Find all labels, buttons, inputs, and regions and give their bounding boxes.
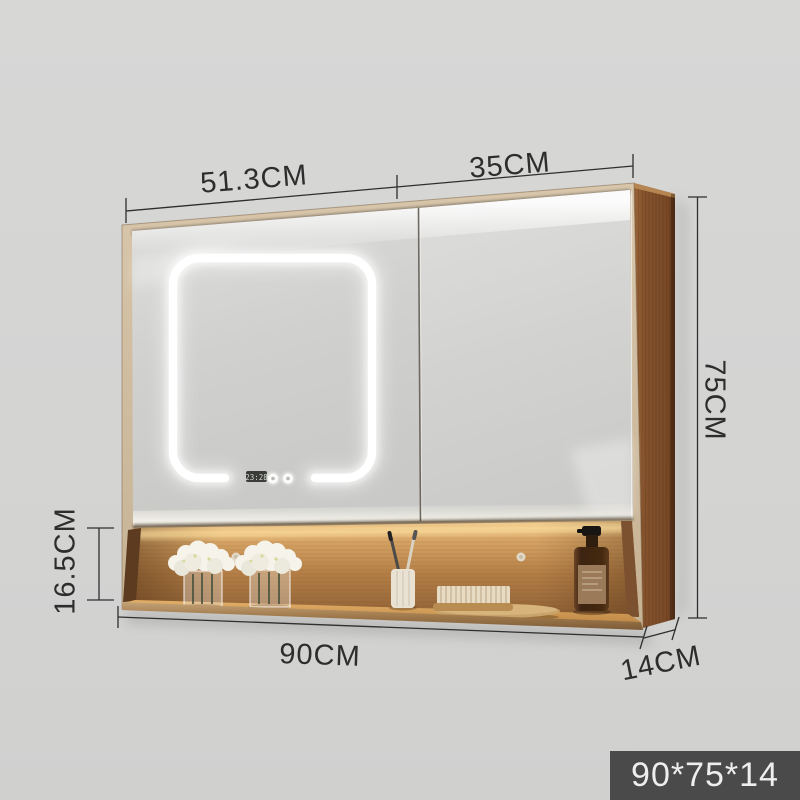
dimension-label-top-right-width: 35CM — [468, 148, 551, 183]
mirror-cabinet: 23:28 — [122, 183, 675, 630]
dimension-label-shelf-height: 16.5CM — [52, 507, 81, 615]
right-mirror-door — [419, 190, 633, 521]
screw-cap-right — [517, 553, 526, 562]
cabinet-scene: 23:28 — [0, 0, 800, 800]
wooden-brush — [433, 586, 513, 611]
size-badge: 90*75*14 — [610, 751, 800, 800]
cabinet-side-shadow — [675, 197, 688, 617]
touch-button-light — [267, 472, 280, 485]
dimension-label-total-width: 90CM — [279, 640, 361, 672]
product-image: 23:28 — [0, 0, 800, 800]
clock-time: 23:28 — [245, 473, 268, 482]
dimension-label-height: 75CM — [700, 359, 729, 440]
touch-button-defog — [282, 472, 295, 485]
